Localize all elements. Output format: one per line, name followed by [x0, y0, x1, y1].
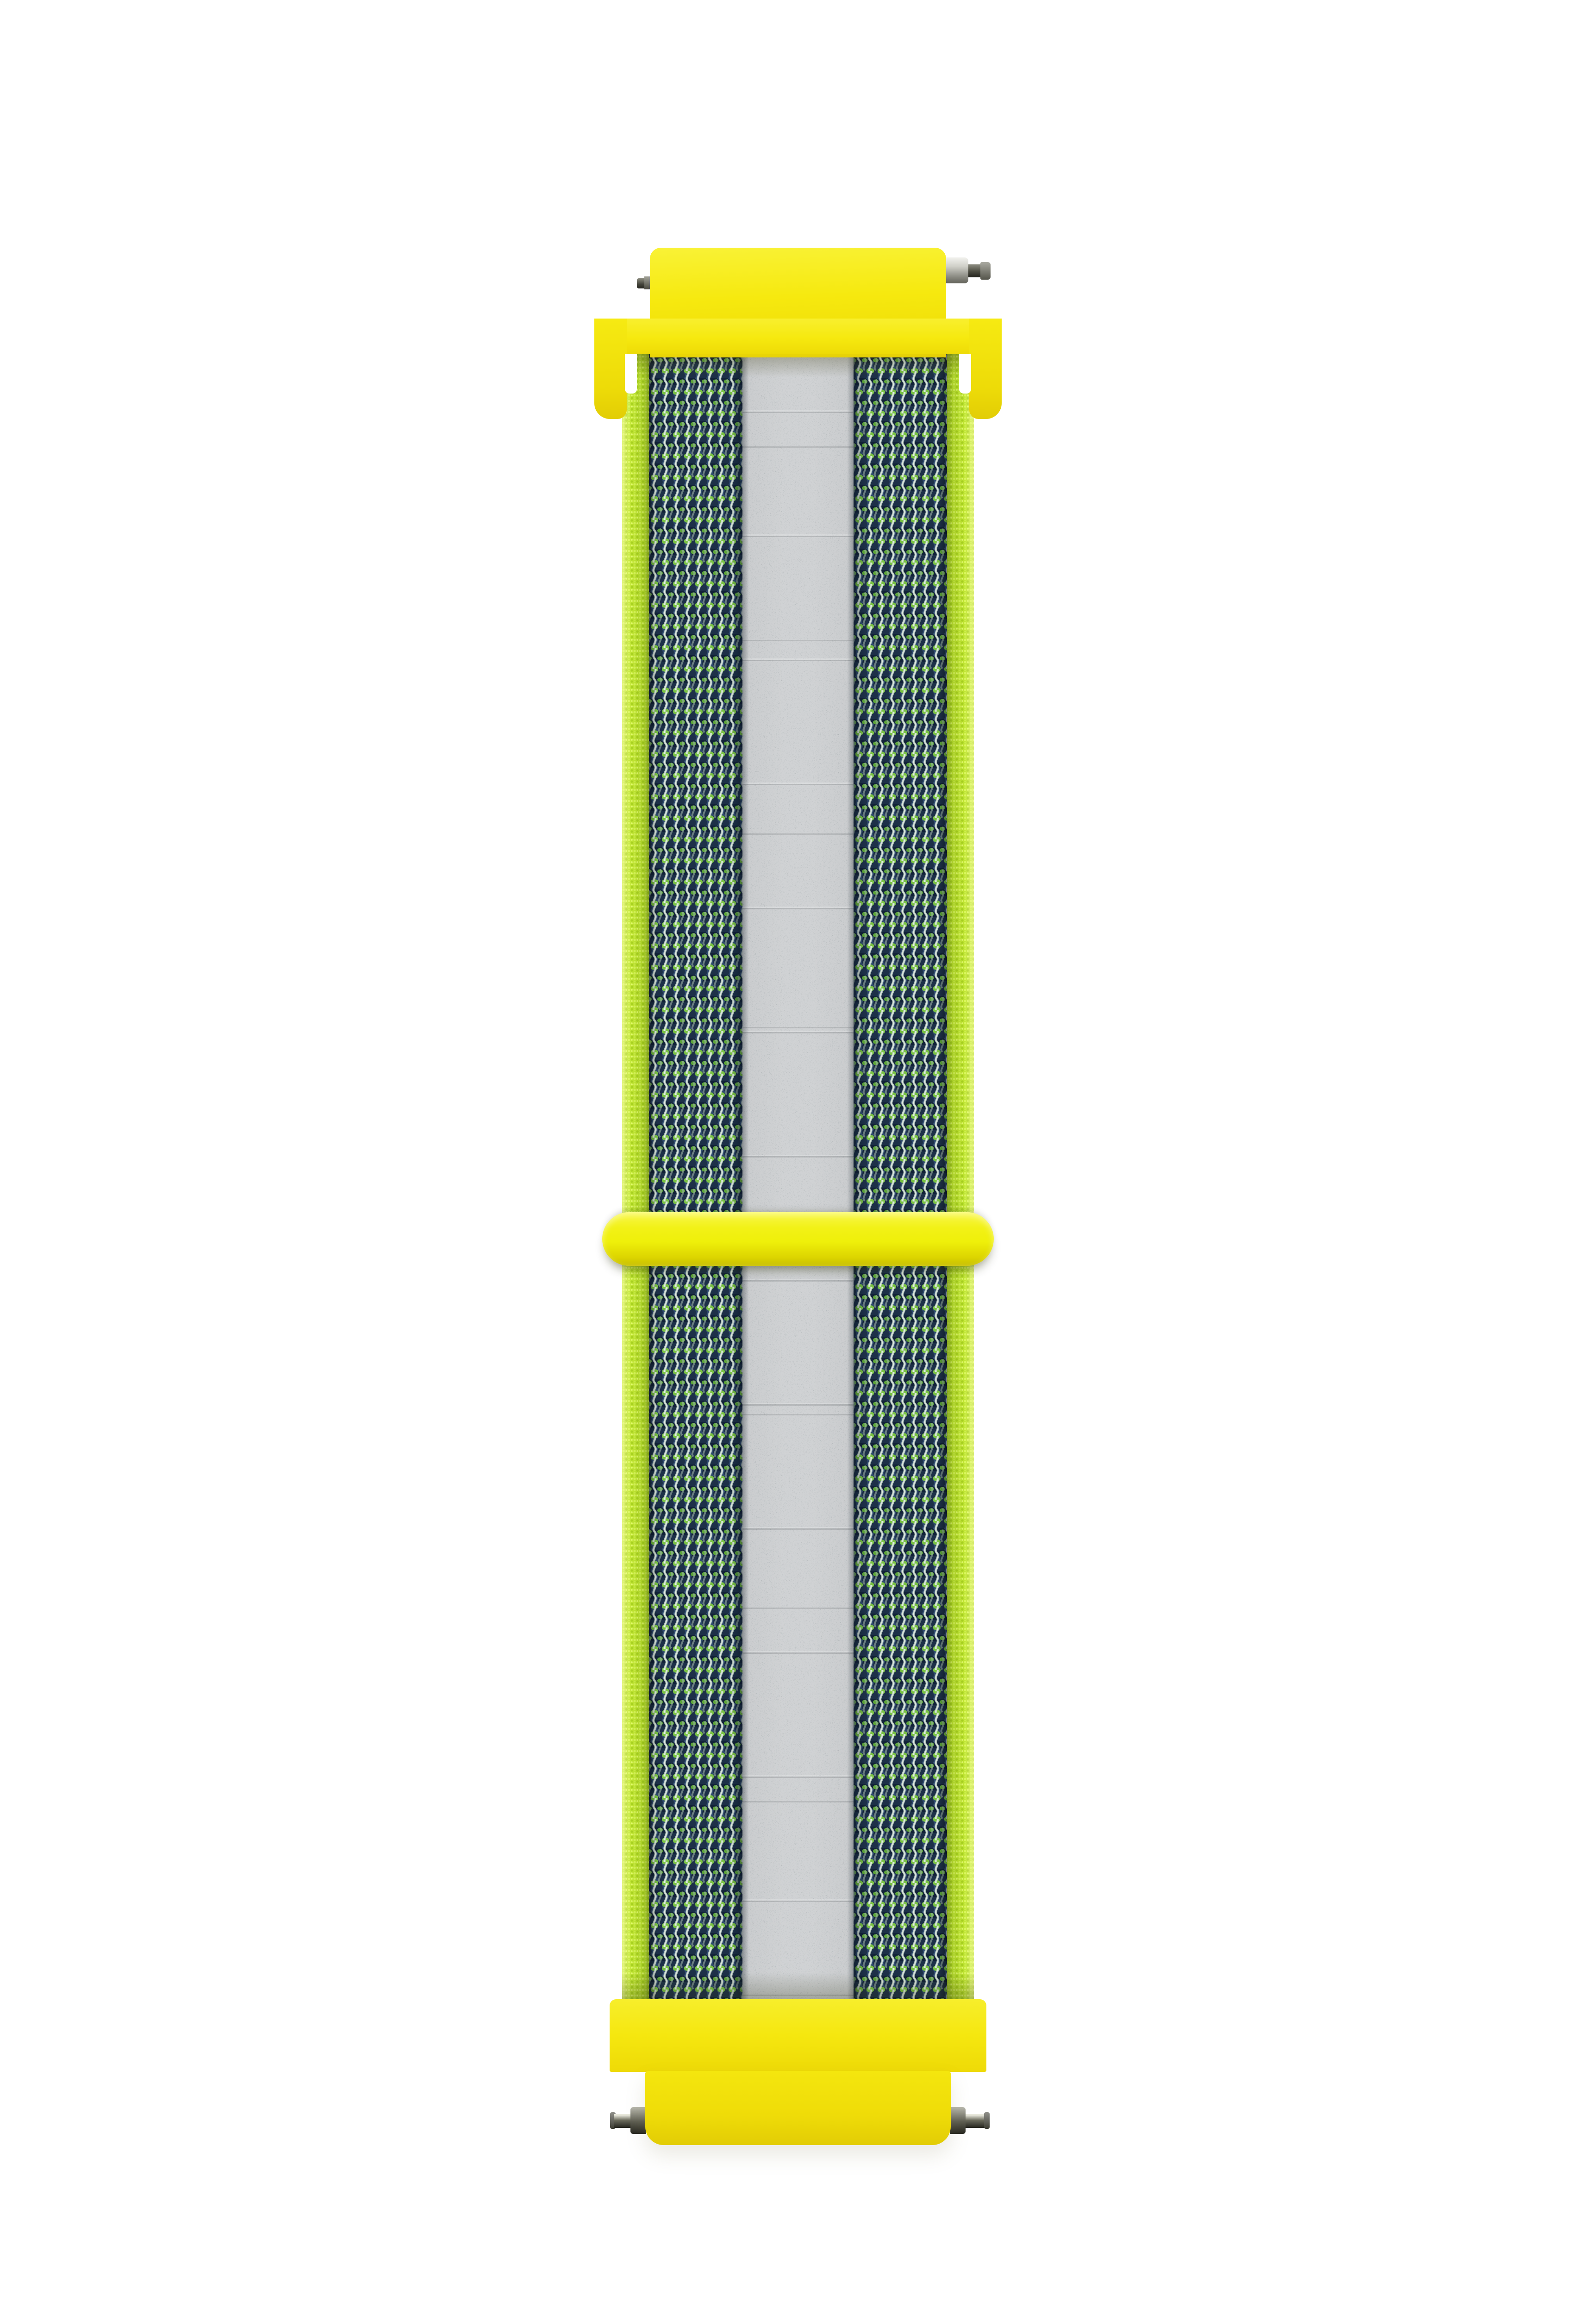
spring-bar-pin-top-right-shaft — [968, 264, 980, 277]
neon-fuzz-texture — [947, 350, 974, 2005]
top-adapter-flange — [594, 319, 1002, 354]
product-photo — [0, 0, 1596, 2315]
reflective-stripe — [742, 350, 854, 2005]
weave-texture — [649, 350, 742, 2005]
weave-texture — [854, 350, 947, 2005]
strap-slot-left — [625, 354, 637, 394]
bottom-adapter-body — [645, 2071, 951, 2145]
edge-binding-right — [947, 350, 974, 2005]
strap-slot-right — [959, 354, 971, 394]
spring-bar-pin-bottom-left-collar — [630, 2107, 646, 2134]
spring-bar-pin-bottom-right-shaft — [966, 2114, 985, 2128]
edge-binding-left — [622, 350, 649, 2005]
spring-bar-pin-top-right-tip — [980, 262, 991, 280]
nylon-strap — [622, 350, 974, 2005]
bottom-adapter-flange — [610, 1999, 986, 2072]
spring-bar-pin-top-right-collar — [946, 257, 968, 283]
stripe-sparkle-texture — [742, 350, 854, 2005]
spring-bar-pin-bottom-right-collar — [950, 2107, 966, 2134]
keeper-loop — [602, 1212, 994, 1266]
top-adapter-leg-left — [594, 319, 627, 419]
spring-bar-pin-top-left — [644, 276, 650, 289]
spring-bar-pin-bottom-right-tip — [984, 2112, 990, 2129]
woven-fabric-right — [854, 350, 947, 2005]
woven-fabric-left — [649, 350, 742, 2005]
top-adapter-leg-right — [969, 319, 1002, 419]
neon-fuzz-texture — [622, 350, 649, 2005]
